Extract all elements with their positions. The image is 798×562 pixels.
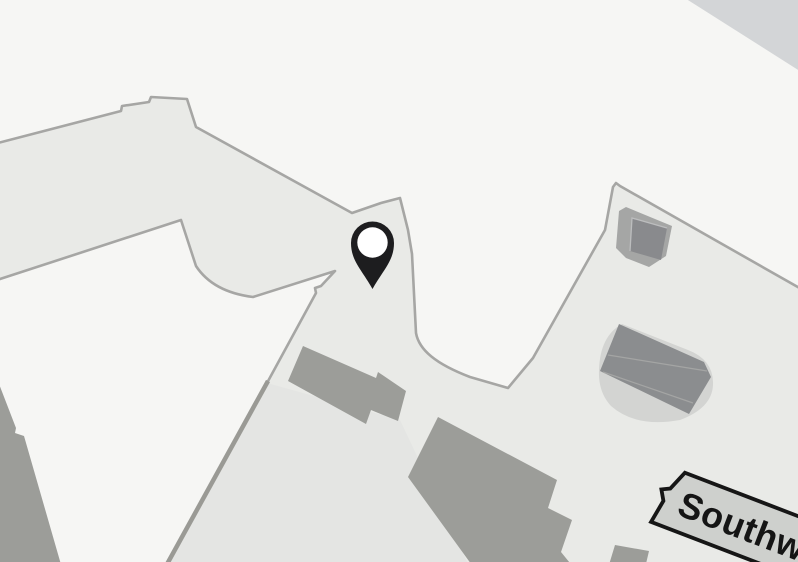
map-view[interactable]: Southwark — [0, 0, 798, 562]
map-canvas[interactable]: Southwark — [0, 0, 798, 562]
